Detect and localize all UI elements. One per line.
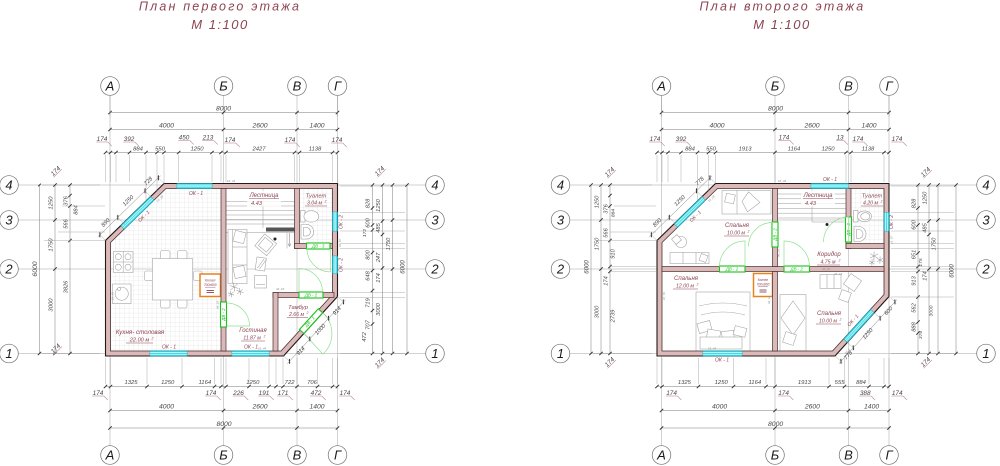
svg-text:План первого этажа: План первого этажа xyxy=(139,0,301,14)
svg-text:485: 485 xyxy=(376,222,382,232)
svg-text:8000: 8000 xyxy=(216,421,231,428)
svg-text:2: 2 xyxy=(324,200,327,204)
svg-text:2: 2 xyxy=(838,259,841,263)
svg-text:Спальня: Спальня xyxy=(725,223,750,229)
svg-text:1913: 1913 xyxy=(738,147,752,153)
svg-text:884: 884 xyxy=(611,209,617,217)
svg-text:пб_18: пб_18 xyxy=(215,300,219,309)
svg-text:1164: 1164 xyxy=(748,380,761,386)
svg-text:1164: 1164 xyxy=(198,380,211,386)
svg-text:ДВ - 2: ДВ - 2 xyxy=(725,267,739,272)
svg-text:ОК - 2: ОК - 2 xyxy=(889,215,895,229)
svg-text:пб_1б: пб_1б xyxy=(822,267,831,271)
svg-text:4.43: 4.43 xyxy=(805,201,817,207)
svg-text:ОК - 1: ОК - 1 xyxy=(162,345,176,351)
svg-text:А: А xyxy=(656,448,666,463)
svg-text:1400: 1400 xyxy=(309,404,324,411)
svg-text:4.75 м: 4.75 м xyxy=(820,260,836,266)
svg-text:722: 722 xyxy=(285,380,296,386)
svg-text:2: 2 xyxy=(747,230,750,234)
svg-text:1: 1 xyxy=(5,346,12,361)
svg-text:ДВ - 2: ДВ - 2 xyxy=(790,267,804,272)
svg-text:3000: 3000 xyxy=(376,302,382,315)
svg-text:ОК - 1: ОК - 1 xyxy=(244,345,258,351)
svg-text:ОК - 2: ОК - 2 xyxy=(339,258,345,272)
svg-text:175: 175 xyxy=(918,258,924,266)
svg-text:А: А xyxy=(105,448,115,463)
svg-text:485: 485 xyxy=(923,222,929,232)
svg-text:2: 2 xyxy=(151,337,154,341)
svg-text:247: 247 xyxy=(376,252,382,263)
svg-text:1250: 1250 xyxy=(246,380,260,386)
svg-text:11.87 м: 11.87 м xyxy=(243,336,261,342)
svg-text:2: 2 xyxy=(839,318,842,322)
svg-text:4000: 4000 xyxy=(159,404,174,411)
svg-text:пб_1б: пб_1б xyxy=(276,287,285,291)
svg-text:А: А xyxy=(656,79,666,94)
svg-text:174: 174 xyxy=(923,271,929,281)
svg-text:1: 1 xyxy=(431,346,438,361)
svg-text:22.00 м: 22.00 м xyxy=(129,338,150,344)
svg-text:2: 2 xyxy=(880,200,883,204)
svg-text:Тамбур: Тамбур xyxy=(288,305,309,311)
svg-text:1: 1 xyxy=(982,346,989,361)
svg-text:4: 4 xyxy=(982,178,989,193)
svg-text:1750: 1750 xyxy=(595,237,601,250)
svg-text:6000: 6000 xyxy=(949,264,956,278)
svg-text:12.00 м: 12.00 м xyxy=(676,284,694,290)
svg-text:1138: 1138 xyxy=(862,147,875,153)
svg-text:ОК - 1: ОК - 1 xyxy=(715,358,729,364)
svg-text:4.43: 4.43 xyxy=(251,201,263,207)
svg-text:1250: 1250 xyxy=(595,195,601,208)
svg-text:2: 2 xyxy=(263,335,266,339)
svg-text:Б: Б xyxy=(219,79,228,94)
svg-text:2: 2 xyxy=(556,262,565,277)
svg-text:2: 2 xyxy=(430,262,439,277)
svg-text:ДВ - 3: ДВ - 3 xyxy=(311,244,325,249)
svg-text:706: 706 xyxy=(307,380,318,386)
svg-text:ОК - 2: ОК - 2 xyxy=(339,215,345,229)
svg-text:884: 884 xyxy=(74,205,80,215)
svg-text:562: 562 xyxy=(912,302,918,312)
svg-text:В: В xyxy=(293,448,302,463)
svg-text:ОК - 1: ОК - 1 xyxy=(823,177,837,183)
svg-text:8000: 8000 xyxy=(216,106,231,113)
svg-text:пб_18: пб_18 xyxy=(767,295,771,304)
svg-text:888: 888 xyxy=(912,321,918,331)
svg-text:1250: 1250 xyxy=(923,191,929,204)
svg-text:16_44: 16_44 xyxy=(258,347,267,351)
svg-text:1400: 1400 xyxy=(309,123,324,130)
svg-text:3: 3 xyxy=(5,213,13,228)
svg-text:2.66 м: 2.66 м xyxy=(288,312,305,318)
svg-text:16_81: 16_81 xyxy=(662,291,666,300)
svg-text:Коридор: Коридор xyxy=(817,252,841,258)
svg-text:2: 2 xyxy=(696,283,699,287)
svg-text:пб_1б: пб_1б xyxy=(834,272,843,276)
svg-text:6000: 6000 xyxy=(32,261,39,276)
svg-text:2: 2 xyxy=(4,262,13,277)
svg-text:719: 719 xyxy=(366,297,372,307)
svg-text:Туалет: Туалет xyxy=(862,194,883,200)
svg-text:4: 4 xyxy=(431,178,438,193)
svg-text:913: 913 xyxy=(912,275,918,285)
svg-text:Спальня: Спальня xyxy=(674,276,699,282)
svg-text:16_87: 16_87 xyxy=(338,238,342,247)
svg-text:16_44: 16_44 xyxy=(708,347,717,351)
svg-text:2: 2 xyxy=(306,311,309,315)
svg-text:2600: 2600 xyxy=(804,404,820,411)
svg-text:1400: 1400 xyxy=(864,404,879,411)
svg-text:2600: 2600 xyxy=(251,123,267,130)
svg-text:376: 376 xyxy=(918,331,924,339)
svg-text:8000: 8000 xyxy=(768,421,783,428)
svg-text:В: В xyxy=(844,448,853,463)
svg-text:6000: 6000 xyxy=(400,260,407,274)
svg-text:16_44: 16_44 xyxy=(778,179,787,183)
svg-text:1325: 1325 xyxy=(124,380,138,386)
svg-text:4000: 4000 xyxy=(709,123,724,130)
svg-text:3: 3 xyxy=(557,213,565,228)
svg-text:ДВ - 2: ДВ - 2 xyxy=(221,308,226,322)
svg-text:648: 648 xyxy=(366,270,372,280)
svg-text:10.00 м: 10.00 м xyxy=(727,231,745,237)
svg-text:Г: Г xyxy=(334,79,342,94)
svg-text:М 1:100: М 1:100 xyxy=(753,17,810,32)
svg-text:376: 376 xyxy=(64,195,70,205)
svg-text:пб_18: пб_18 xyxy=(777,248,781,257)
svg-text:2427: 2427 xyxy=(251,147,266,153)
svg-text:651: 651 xyxy=(912,250,918,260)
svg-text:В: В xyxy=(844,79,853,94)
svg-text:376: 376 xyxy=(604,203,610,213)
svg-text:2: 2 xyxy=(981,262,990,277)
svg-text:16_81: 16_81 xyxy=(111,291,115,300)
svg-text:800: 800 xyxy=(366,249,372,259)
svg-text:174: 174 xyxy=(376,273,382,283)
svg-text:16_87: 16_87 xyxy=(889,235,893,244)
svg-text:884: 884 xyxy=(856,380,867,386)
svg-text:1250: 1250 xyxy=(49,196,55,210)
svg-text:16_44: 16_44 xyxy=(227,179,236,183)
svg-text:1: 1 xyxy=(557,346,564,361)
svg-text:174: 174 xyxy=(604,276,610,286)
svg-text:1250: 1250 xyxy=(161,380,175,386)
svg-text:Лестница: Лестница xyxy=(803,193,834,199)
svg-text:828: 828 xyxy=(366,198,372,208)
svg-text:3.04 м: 3.04 м xyxy=(307,201,323,207)
svg-text:472: 472 xyxy=(362,331,368,341)
svg-text:550: 550 xyxy=(706,147,717,153)
svg-text:1750: 1750 xyxy=(49,238,55,252)
svg-text:600: 600 xyxy=(366,217,372,227)
svg-text:Спальня: Спальня xyxy=(817,311,842,317)
svg-text:3000: 3000 xyxy=(595,305,601,318)
svg-text:4: 4 xyxy=(557,178,564,193)
svg-text:М 1:100: М 1:100 xyxy=(191,17,248,32)
svg-text:1325: 1325 xyxy=(678,380,692,386)
svg-text:3: 3 xyxy=(982,213,990,228)
svg-text:Туалет: Туалет xyxy=(306,194,327,200)
svg-text:2739: 2739 xyxy=(611,309,617,323)
svg-text:Б: Б xyxy=(219,448,228,463)
svg-text:555: 555 xyxy=(835,380,846,386)
svg-text:172: 172 xyxy=(362,229,368,237)
svg-text:550: 550 xyxy=(155,147,166,153)
svg-text:8000: 8000 xyxy=(768,106,783,113)
svg-text:3000: 3000 xyxy=(929,305,935,316)
svg-text:4000: 4000 xyxy=(712,404,727,411)
svg-text:566: 566 xyxy=(64,218,70,228)
svg-text:Б: Б xyxy=(771,448,780,463)
svg-text:Лестница: Лестница xyxy=(249,193,280,199)
svg-text:566: 566 xyxy=(604,227,610,237)
svg-text:1250: 1250 xyxy=(376,198,382,211)
svg-text:Г: Г xyxy=(885,448,893,463)
svg-text:600: 600 xyxy=(912,219,918,229)
svg-text:План второго этажа: План второго этажа xyxy=(700,0,866,14)
svg-text:Г: Г xyxy=(885,79,893,94)
svg-text:4: 4 xyxy=(5,178,12,193)
svg-text:В: В xyxy=(293,79,302,94)
svg-text:700х800: 700х800 xyxy=(204,283,217,287)
svg-text:А: А xyxy=(105,79,115,94)
svg-text:707: 707 xyxy=(366,319,372,329)
svg-text:700х800: 700х800 xyxy=(756,282,769,286)
svg-text:Гостиная: Гостиная xyxy=(239,328,267,334)
svg-text:1913: 1913 xyxy=(798,380,812,386)
svg-text:1400: 1400 xyxy=(861,123,876,130)
svg-text:10.00 м: 10.00 м xyxy=(819,319,837,325)
svg-text:1250: 1250 xyxy=(821,147,835,153)
svg-text:Б: Б xyxy=(771,79,780,94)
svg-text:1250: 1250 xyxy=(190,147,204,153)
svg-text:3000: 3000 xyxy=(49,298,55,312)
svg-text:884: 884 xyxy=(685,147,696,153)
svg-text:828: 828 xyxy=(912,198,918,208)
svg-text:884: 884 xyxy=(133,147,144,153)
svg-text:910: 910 xyxy=(611,248,617,258)
svg-text:4000: 4000 xyxy=(159,123,174,130)
svg-text:4.20 м: 4.20 м xyxy=(863,201,879,207)
svg-text:1138: 1138 xyxy=(309,147,322,153)
svg-text:1164: 1164 xyxy=(788,147,801,153)
svg-text:ОК - 1: ОК - 1 xyxy=(189,191,203,197)
svg-text:6000: 6000 xyxy=(584,260,591,274)
svg-text:1250: 1250 xyxy=(715,380,729,386)
svg-text:Кухня- столовая: Кухня- столовая xyxy=(116,329,165,336)
svg-text:2600: 2600 xyxy=(251,404,267,411)
svg-text:Г: Г xyxy=(334,448,342,463)
svg-text:3: 3 xyxy=(431,213,439,228)
svg-text:3826: 3826 xyxy=(64,280,70,293)
svg-text:2600: 2600 xyxy=(803,123,819,130)
svg-text:ДВ - 2: ДВ - 2 xyxy=(304,293,318,298)
svg-text:ДВ - 2: ДВ - 2 xyxy=(772,228,777,242)
